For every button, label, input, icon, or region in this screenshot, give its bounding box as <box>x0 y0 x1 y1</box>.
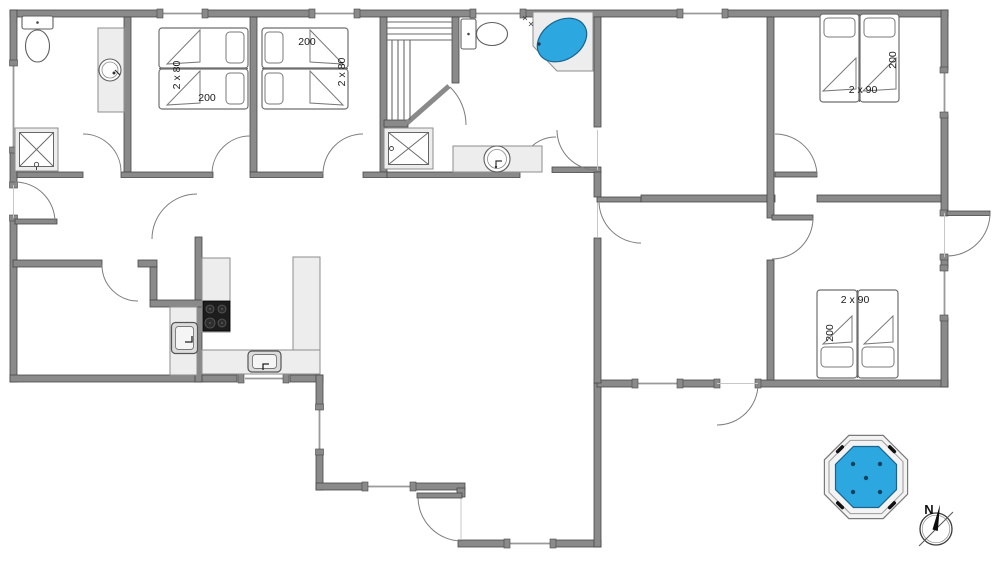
washbasin-icon <box>98 28 124 112</box>
pillow-icon <box>824 18 855 37</box>
bedroom-top-left-beds: 2 x 80 200 <box>159 28 248 109</box>
main-entrance-door-arc <box>418 497 462 541</box>
compass-north-label: N <box>924 502 933 517</box>
bedroom-bottom-right-door-arc <box>772 218 813 259</box>
pillow-icon <box>862 347 894 367</box>
bedroom1-door-arc <box>212 136 250 174</box>
toilet-icon <box>22 16 53 62</box>
pillow-icon <box>226 73 244 104</box>
hall-exterior-door-arc <box>717 384 758 425</box>
bedroom-top-right-beds: 2 x 90 200 <box>820 14 899 102</box>
bedroom-top-middle-beds: 200 2 x 80 <box>262 28 348 109</box>
corner-bathtub-icon <box>523 9 595 71</box>
stove-icon <box>203 301 230 331</box>
bathroom-top-left <box>15 16 124 171</box>
bed-length-label: 200 <box>298 36 316 48</box>
kitchen-counter-right <box>293 257 320 350</box>
kitchen <box>202 257 320 374</box>
sauna-door-arc <box>450 87 466 125</box>
bed-size-label: 2 x 80 <box>336 58 348 87</box>
east-terrace-door-arc <box>947 213 990 256</box>
utility-room-door-arc <box>102 265 138 301</box>
west-entrance-door-arc <box>15 182 55 222</box>
shower-icon-2 <box>384 128 433 169</box>
bedroom-top-right-door-leaf <box>775 172 817 177</box>
pillow-icon <box>226 32 244 63</box>
bed-size-label: 2 x 90 <box>849 84 878 96</box>
floor-plan-drawing: 2 x 80 200 200 2 x 80 2 x 90 200 2 x 90 <box>0 0 1000 563</box>
shower-icon <box>15 128 58 171</box>
east-terrace-door-leaf <box>947 211 990 216</box>
pillow-icon <box>821 347 853 367</box>
pillow-icon <box>265 32 283 63</box>
interior-walls <box>13 17 941 383</box>
sauna <box>387 22 452 120</box>
utility-sink-icon <box>172 323 198 354</box>
sauna-door-leaf <box>407 86 449 123</box>
toilet-icon-2 <box>461 19 508 49</box>
bedroom-bottom-right-door-leaf <box>772 215 813 220</box>
bedroom-top-right-door-arc <box>775 134 817 176</box>
bathroom2-hall-door-arc <box>557 130 597 170</box>
bed-length-label: 200 <box>887 51 899 69</box>
bed-length-label: 200 <box>824 324 836 342</box>
compass-icon: N <box>919 502 953 546</box>
bed-length-label: 200 <box>198 92 216 104</box>
main-entrance-door-leaf <box>417 493 462 498</box>
sauna-bench-icon <box>387 22 452 120</box>
living-room-door-leaf <box>597 197 641 202</box>
bathroom1-door-arc <box>83 134 121 172</box>
kitchen-door-arc <box>152 194 197 239</box>
floor-plan-canvas: 2 x 80 200 200 2 x 80 2 x 90 200 2 x 90 <box>0 0 1000 563</box>
bed-size-label: 2 x 90 <box>841 294 870 306</box>
west-entrance-door-leaf <box>15 219 57 224</box>
pillow-icon <box>265 73 283 104</box>
bed-size-label: 2 x 80 <box>171 61 183 90</box>
bedroom2-door-arc <box>323 134 363 174</box>
kitchen-sink-icon <box>248 351 281 372</box>
living-room-door-arc <box>599 201 641 243</box>
pillow-icon <box>864 18 895 37</box>
bedroom-bottom-right-beds: 2 x 90 200 <box>817 290 898 378</box>
hot-tub-icon <box>824 435 907 518</box>
utility-room <box>170 307 198 375</box>
washbasin-icon-2 <box>453 146 542 172</box>
